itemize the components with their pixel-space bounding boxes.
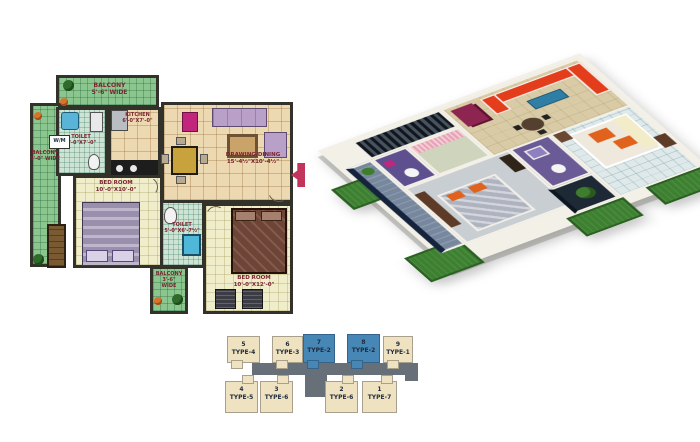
unit-type: TYPE-1 bbox=[384, 349, 412, 357]
flower-icon bbox=[34, 112, 42, 120]
unit-type: TYPE-7 bbox=[363, 394, 396, 402]
rug bbox=[227, 134, 258, 158]
wash-basin bbox=[90, 112, 103, 132]
cabinet-3d bbox=[553, 131, 573, 143]
sofa bbox=[212, 108, 267, 127]
plant-3d bbox=[572, 185, 600, 201]
unit-type: TYPE-6 bbox=[326, 394, 357, 402]
unit-type: TYPE-2 bbox=[348, 347, 379, 355]
shower bbox=[182, 234, 201, 256]
sofa-3d bbox=[565, 62, 612, 96]
floorplan-2d: BALCONY 5'-6" WIDE BALCONY 5'-0" WIDE TO… bbox=[30, 62, 310, 320]
keyplan-unit-6: 6 TYPE-3 bbox=[272, 336, 303, 363]
unit-number: 5 bbox=[228, 341, 259, 349]
unit-type: TYPE-5 bbox=[226, 394, 257, 402]
shower-3d bbox=[524, 145, 551, 160]
wc bbox=[164, 207, 177, 224]
basin-3d bbox=[383, 160, 397, 168]
keyplan-unit-1: 1 TYPE-7 bbox=[362, 381, 397, 413]
armchair bbox=[264, 132, 287, 158]
plant-icon bbox=[63, 80, 74, 91]
unit-number: 9 bbox=[384, 341, 412, 349]
flower-icon bbox=[154, 297, 162, 305]
burner bbox=[130, 165, 137, 172]
unit-number: 8 bbox=[348, 339, 379, 347]
pillow bbox=[235, 211, 256, 221]
keyplan-unit-4: 4 TYPE-5 bbox=[225, 381, 258, 413]
keyplan-unit-7: 7 TYPE-2 bbox=[303, 334, 335, 363]
entry-arrow-icon bbox=[291, 163, 305, 187]
unit-number: 3 bbox=[261, 386, 292, 394]
ottoman bbox=[215, 289, 236, 309]
unit-number: 6 bbox=[273, 341, 302, 349]
tv-unit bbox=[182, 112, 198, 132]
plant-icon bbox=[33, 254, 44, 265]
wardrobe bbox=[47, 224, 66, 268]
pillow bbox=[86, 250, 108, 262]
ottoman bbox=[242, 289, 263, 309]
keyplan-unit-9: 9 TYPE-1 bbox=[383, 336, 413, 363]
unit-number: 4 bbox=[226, 386, 257, 394]
pillow bbox=[261, 211, 282, 221]
dining-chair bbox=[176, 137, 186, 145]
dining-table bbox=[171, 146, 198, 175]
unit-number: 7 bbox=[304, 339, 334, 347]
cabinet-3d bbox=[450, 103, 489, 127]
room-balcony-bottom bbox=[150, 266, 188, 314]
burner bbox=[116, 165, 123, 172]
floorplan-3d-plane bbox=[318, 53, 700, 269]
bathtub bbox=[61, 112, 79, 130]
keyplan-unit-2: 2 TYPE-6 bbox=[325, 381, 358, 413]
keyplan-core bbox=[305, 363, 327, 397]
floorplan-brochure-image: BALCONY 5'-6" WIDE BALCONY 5'-0" WIDE TO… bbox=[0, 0, 700, 442]
kitchen-sink bbox=[111, 110, 128, 131]
keyplan-unit-8: 8 TYPE-2 bbox=[347, 334, 380, 363]
washing-machine bbox=[49, 135, 70, 149]
chair-3d bbox=[537, 129, 548, 135]
dining-chair bbox=[176, 176, 186, 184]
keyplan-unit-3: 3 TYPE-6 bbox=[260, 381, 293, 413]
key-plan: 5 TYPE-4 6 TYPE-3 7 TYPE-2 8 TYPE-2 9 TY… bbox=[222, 334, 436, 432]
flower-icon bbox=[60, 98, 68, 106]
unit-number: 1 bbox=[363, 386, 396, 394]
floorplan-3d-render bbox=[318, 0, 700, 318]
dining-chair bbox=[200, 154, 208, 164]
plant-3d bbox=[359, 166, 377, 176]
wc-3d bbox=[402, 167, 422, 179]
unit-type: TYPE-3 bbox=[273, 349, 302, 357]
unit-number: 2 bbox=[326, 386, 357, 394]
wc bbox=[88, 154, 100, 170]
unit-type: TYPE-4 bbox=[228, 349, 259, 357]
unit-type: TYPE-6 bbox=[261, 394, 292, 402]
keyplan-unit-5: 5 TYPE-4 bbox=[227, 336, 260, 363]
pillow bbox=[112, 250, 134, 262]
dining-chair bbox=[161, 154, 169, 164]
wc-3d bbox=[548, 163, 568, 175]
plant-icon bbox=[172, 294, 183, 305]
unit-type: TYPE-2 bbox=[304, 347, 334, 355]
chair-3d bbox=[541, 114, 551, 120]
keyplan-corridor-step bbox=[405, 363, 418, 381]
